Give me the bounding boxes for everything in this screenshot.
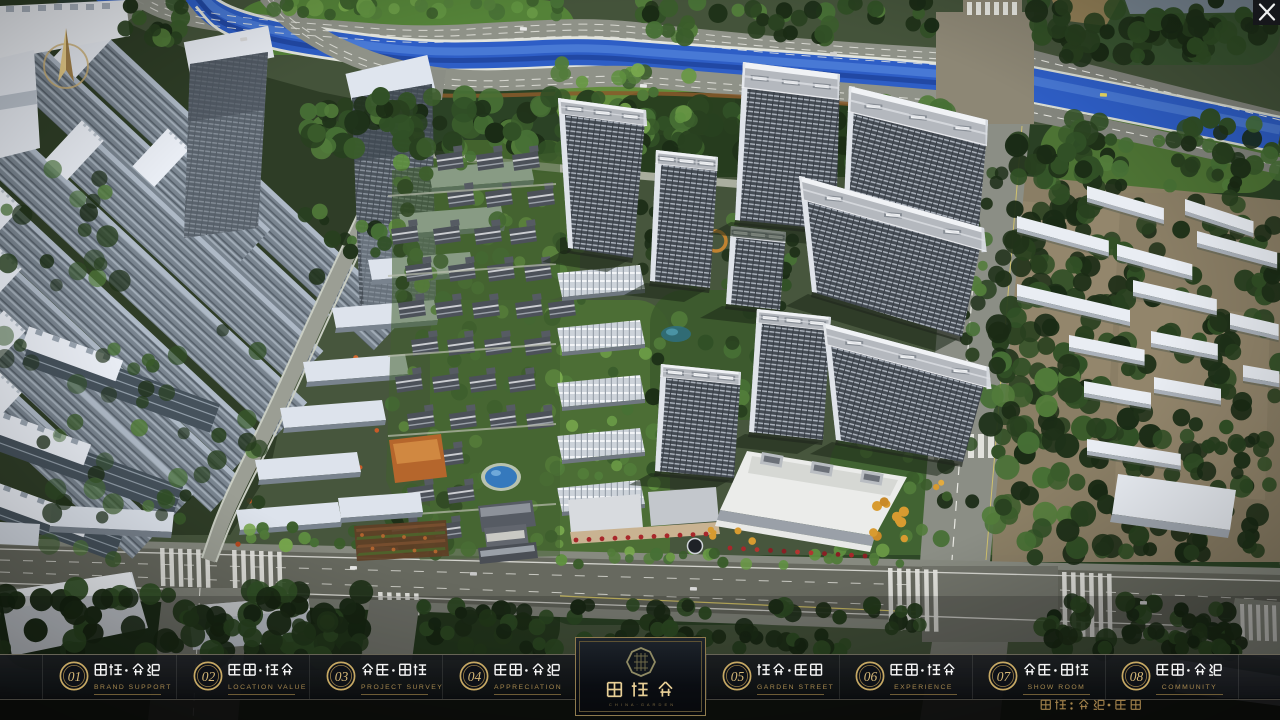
svg-text:05: 05 — [731, 669, 745, 684]
svg-text:06: 06 — [864, 669, 878, 684]
svg-text:08: 08 — [1130, 669, 1144, 684]
svg-text:01: 01 — [68, 669, 82, 684]
svg-text:03: 03 — [335, 669, 349, 684]
svg-text:02: 02 — [202, 669, 216, 684]
svg-text:04: 04 — [468, 669, 482, 684]
svg-text:07: 07 — [997, 669, 1012, 684]
